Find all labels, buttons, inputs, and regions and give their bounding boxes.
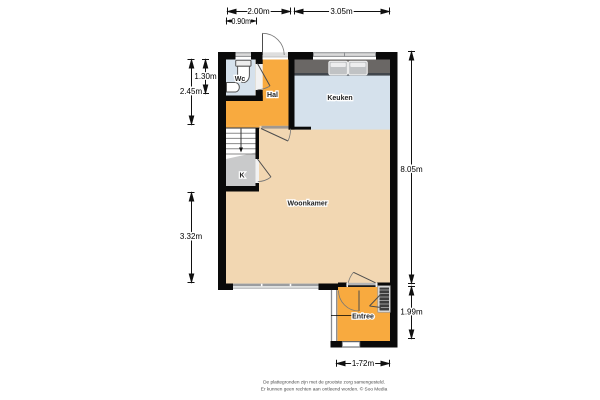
svg-text:2.00m: 2.00m — [247, 7, 270, 16]
svg-text:0.90m: 0.90m — [231, 17, 251, 26]
svg-text:2.45m: 2.45m — [180, 87, 203, 96]
svg-text:Hal: Hal — [267, 92, 278, 99]
svg-text:8.05m: 8.05m — [400, 165, 423, 174]
svg-text:3.05m: 3.05m — [330, 7, 353, 16]
svg-text:K: K — [239, 172, 244, 179]
svg-text:1.99m: 1.99m — [400, 307, 423, 316]
svg-text:1.30m: 1.30m — [194, 72, 217, 81]
svg-text:1.72m: 1.72m — [352, 359, 375, 368]
svg-text:Woonkamer: Woonkamer — [288, 200, 328, 207]
svg-text:3.32m: 3.32m — [180, 232, 203, 241]
svg-text:Entree: Entree — [352, 313, 374, 320]
svg-text:Wc: Wc — [235, 76, 246, 83]
svg-text:Keuken: Keuken — [327, 95, 352, 102]
